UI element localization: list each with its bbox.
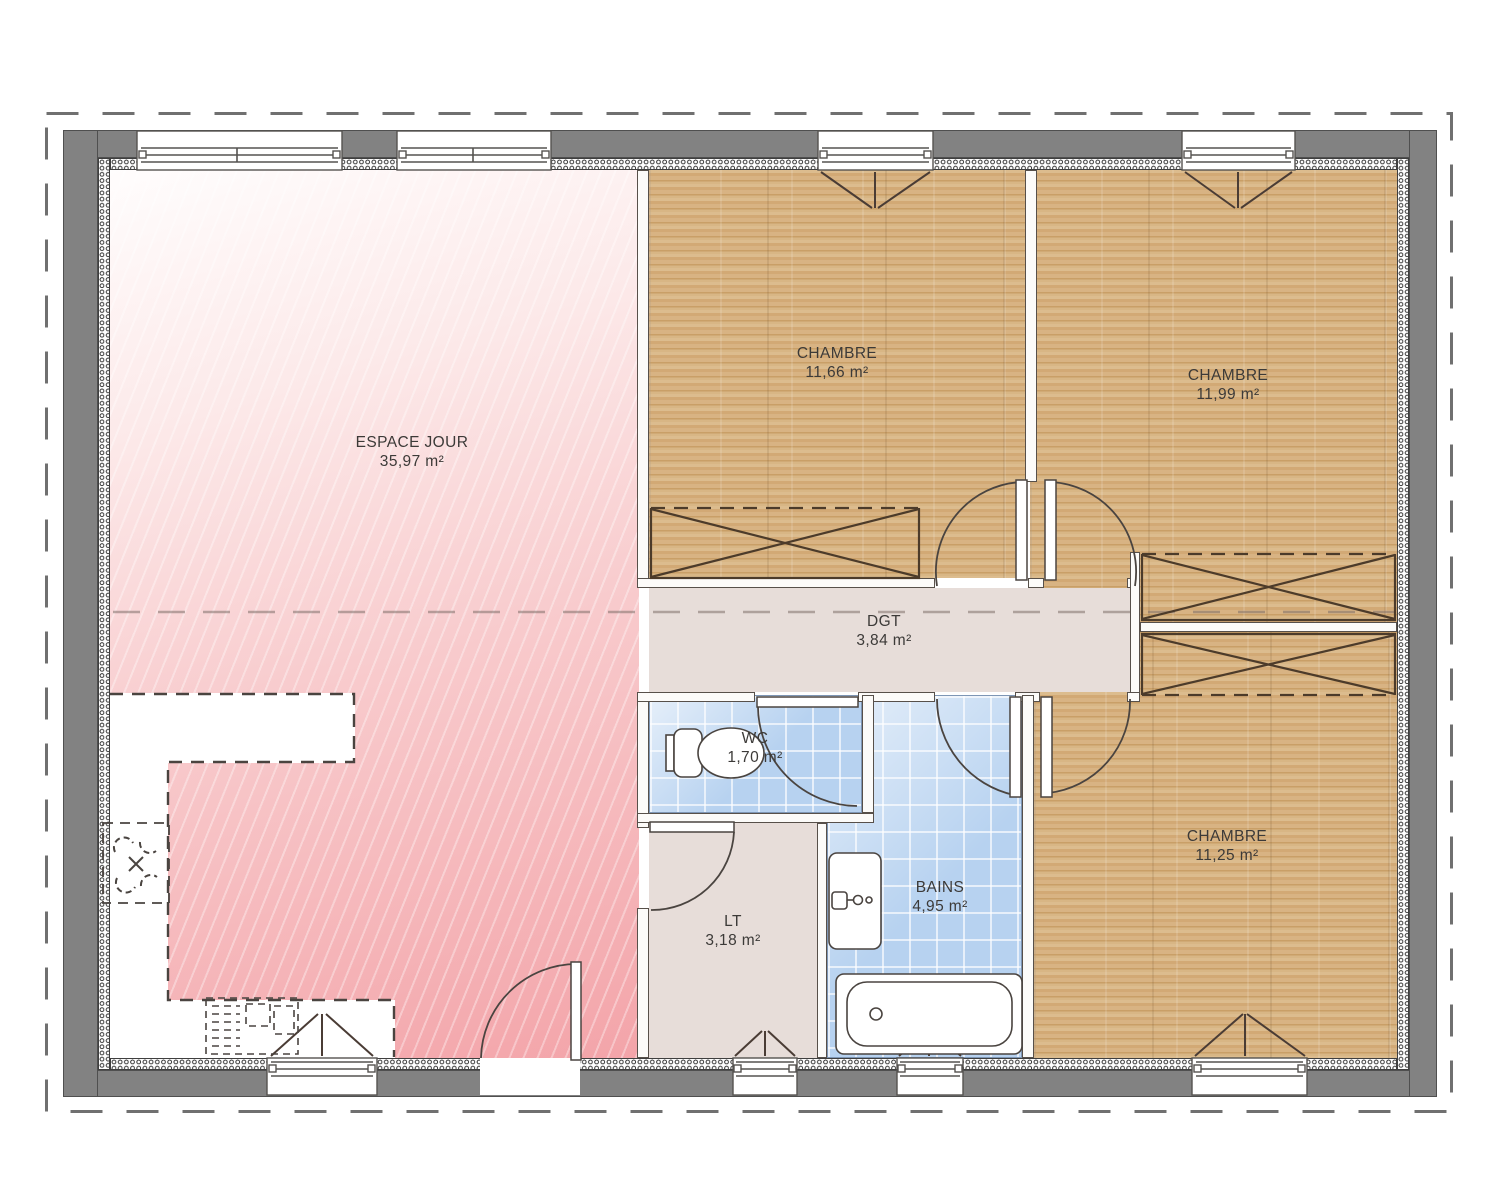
room-area: 3,84 m²	[856, 631, 911, 650]
wall-partition	[1025, 170, 1037, 482]
insulation-band-left	[98, 158, 110, 1070]
room-area: 3,18 m²	[705, 931, 760, 950]
room-label-chambre-3: CHAMBRE 11,25 m²	[1187, 827, 1267, 865]
wall-partition	[1140, 622, 1397, 632]
floor-plan: ESPACE JOUR 35,97 m² CHAMBRE 11,66 m² CH…	[0, 0, 1500, 1200]
room-area: 11,25 m²	[1187, 846, 1267, 865]
room-name: CHAMBRE	[1188, 366, 1268, 385]
room-label-espace-jour: ESPACE JOUR 35,97 m²	[356, 433, 469, 471]
exterior-wall-right	[1409, 130, 1437, 1097]
wall-partition	[637, 908, 649, 1058]
room-area: 35,97 m²	[356, 452, 469, 471]
wall-partition	[862, 695, 874, 813]
wall-partition	[637, 578, 935, 588]
room-area: 11,99 m²	[1188, 385, 1268, 404]
room-name: BAINS	[912, 878, 967, 897]
exterior-wall-left	[63, 130, 98, 1097]
wall-partition	[637, 692, 649, 828]
wall-partition	[1127, 692, 1140, 702]
wall-partition	[637, 813, 874, 823]
wall-partition	[1130, 552, 1140, 702]
exterior-wall-bottom	[63, 1070, 1437, 1097]
room-name: CHAMBRE	[1187, 827, 1267, 846]
room-floor-espace-jour	[110, 170, 639, 1058]
wall-partition	[1028, 578, 1044, 588]
room-label-dgt: DGT 3,84 m²	[856, 612, 911, 650]
kitchen-counter-area	[110, 693, 355, 763]
room-name: ESPACE JOUR	[356, 433, 469, 452]
wall-partition	[637, 170, 649, 588]
room-area: 4,95 m²	[912, 897, 967, 916]
room-area: 11,66 m²	[797, 363, 877, 382]
wall-partition	[1022, 695, 1034, 1058]
room-label-chambre-2: CHAMBRE 11,99 m²	[1188, 366, 1268, 404]
room-label-wc: WC 1,70 m²	[727, 729, 782, 767]
room-name: WC	[727, 729, 782, 748]
room-area: 1,70 m²	[727, 748, 782, 767]
room-label-chambre-1: CHAMBRE 11,66 m²	[797, 344, 877, 382]
room-label-lt: LT 3,18 m²	[705, 912, 760, 950]
room-label-bains: BAINS 4,95 m²	[912, 878, 967, 916]
kitchen-counter-area	[110, 1000, 395, 1058]
insulation-band-bottom	[110, 1058, 1397, 1070]
wall-partition	[817, 823, 827, 1058]
room-name: LT	[705, 912, 760, 931]
insulation-band-right	[1397, 158, 1409, 1070]
exterior-wall-top	[63, 130, 1437, 158]
room-name: DGT	[856, 612, 911, 631]
wall-partition	[637, 692, 755, 702]
room-name: CHAMBRE	[797, 344, 877, 363]
insulation-band-top	[110, 158, 1397, 170]
